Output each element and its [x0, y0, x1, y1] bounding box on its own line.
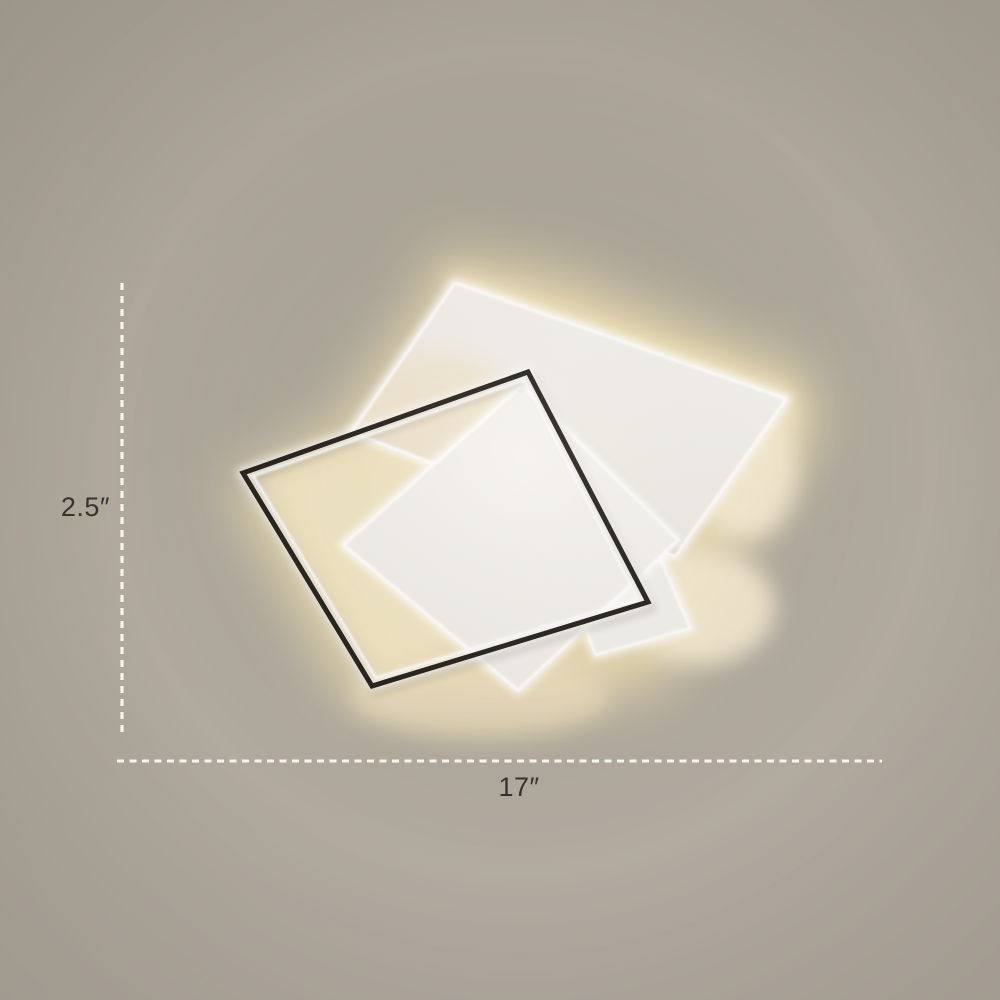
vignette	[0, 0, 1000, 1000]
product-photo: 2.5″ 17″	[0, 0, 1000, 1000]
height-dimension-label: 2.5″	[20, 493, 110, 523]
ceiling-light-photo	[0, 0, 1000, 1000]
width-dimension-label: 17″	[459, 773, 579, 803]
